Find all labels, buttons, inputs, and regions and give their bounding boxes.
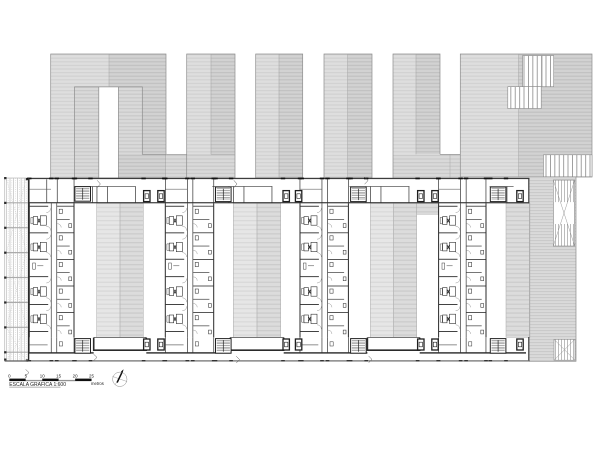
svg-text:20: 20 [73, 373, 78, 378]
svg-text:25: 25 [89, 373, 94, 378]
svg-text:10: 10 [40, 373, 45, 378]
svg-text:15: 15 [56, 373, 61, 378]
svg-text:metros: metros [91, 381, 104, 386]
